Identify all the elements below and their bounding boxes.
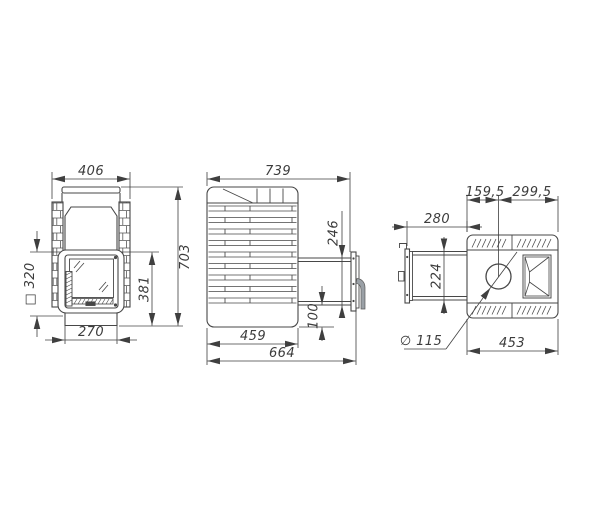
dim-front-square: □ 320 (23, 262, 38, 305)
funnel-inner (525, 257, 549, 296)
side-view (207, 187, 365, 327)
top-handle-grip (399, 272, 405, 282)
side-tunnel (298, 258, 351, 305)
front-body-edges (62, 193, 120, 202)
dim-top-chimney-right: 299,5 (512, 185, 551, 200)
dim-front-base-width: 270 (78, 325, 104, 340)
dim-side-body-depth: 459 (240, 329, 266, 344)
top-dimensions (392, 196, 558, 355)
door-hinge-bottom (114, 303, 117, 306)
side-top-band (207, 189, 298, 204)
flange-bolt (406, 294, 408, 296)
dim-top-body-width: 453 (499, 336, 525, 351)
dim-side-width: 739 (265, 164, 291, 179)
door-frame (65, 255, 118, 308)
front-arch (65, 207, 117, 251)
top-tunnel-flange-outer (410, 252, 413, 301)
flange-bolt (352, 300, 354, 302)
drawing-canvas: 406 703 381 □ 320 270 (0, 0, 600, 524)
dim-front-width: 406 (78, 164, 104, 179)
top-handle-hook (400, 244, 407, 250)
dim-side-opening: 246 (327, 220, 342, 246)
dim-side-overall-depth: 664 (269, 346, 295, 361)
side-dimension-labels: 739 246 100 459 664 (240, 164, 342, 361)
top-band-hatch-top (472, 239, 551, 248)
front-view (30, 187, 183, 326)
side-tunnel-flange (351, 252, 356, 311)
flange-bolt (406, 256, 408, 258)
side-louvers (209, 206, 297, 303)
top-band-edges (467, 235, 558, 318)
top-band-hatch-bottom (472, 306, 551, 315)
top-body (467, 235, 558, 318)
funnel-slopes (525, 257, 549, 296)
dim-top-tunnel-width: 224 (430, 263, 445, 289)
front-pedestal (65, 313, 117, 326)
flange-bolt (352, 283, 354, 285)
dim-front-height: 703 (178, 244, 193, 270)
dim-top-chimney-diameter: ∅ 115 (400, 334, 442, 349)
flange-bolt (352, 257, 354, 259)
dim-top-chimney-left: 159,5 (465, 185, 504, 200)
top-view (399, 235, 559, 318)
top-dimension-labels: 280 159,5 299,5 224 ∅ 115 453 (400, 185, 552, 351)
front-top-plate (62, 187, 120, 193)
door-latch (86, 302, 95, 305)
dim-side-offset: 100 (307, 303, 322, 329)
door-hinge-top (114, 256, 117, 259)
dim-front-door-height: 381 (138, 276, 153, 302)
funnel-outer (523, 255, 551, 298)
technical-drawing-page: 406 703 381 □ 320 270 (0, 0, 600, 524)
dim-top-tunnel-length: 280 (424, 212, 450, 227)
